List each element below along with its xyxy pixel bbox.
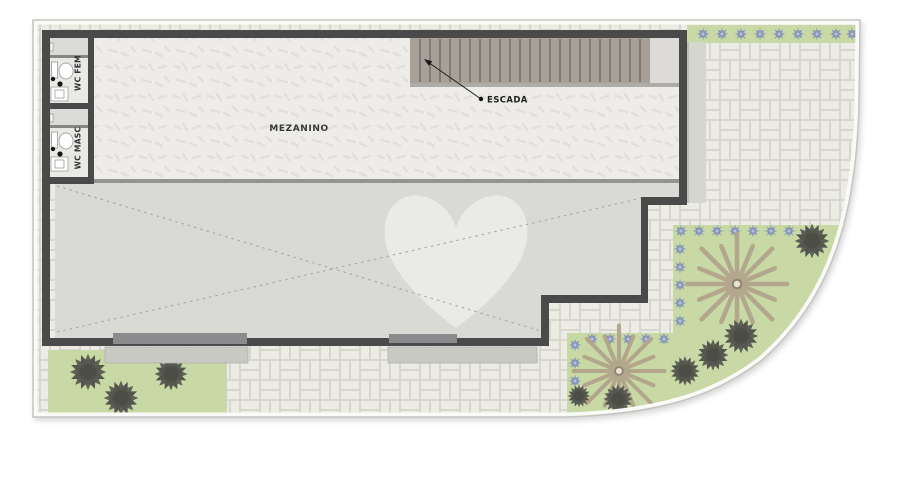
stairs-landing — [650, 38, 679, 83]
wall-right-upper — [679, 30, 687, 205]
door-pivot-icon — [51, 147, 55, 151]
stairs-edge — [410, 83, 679, 87]
toilet-tank-icon — [52, 62, 58, 78]
flower-plant-icon — [568, 356, 581, 369]
flower-plant-icon — [568, 338, 581, 351]
flower-plant-icon — [715, 27, 728, 40]
wall-step2-v — [541, 295, 549, 346]
stairs-label: ESCADA — [487, 96, 528, 106]
wc-fem-anteroom — [50, 38, 88, 55]
flower-plant-icon — [568, 374, 581, 387]
floor-plan-drawing: MEZANINO ESCADA WC FEM WC MASC — [0, 0, 900, 483]
door-pivot-icon — [57, 151, 62, 156]
flower-plant-icon — [782, 224, 795, 237]
faucet-icon — [50, 43, 53, 51]
flower-plant-icon — [696, 27, 709, 40]
flower-plant-icon — [673, 314, 686, 327]
building — [42, 30, 687, 346]
sink-basin-icon — [55, 160, 64, 168]
door-pivot-icon — [57, 81, 62, 86]
flower-plant-icon — [673, 260, 686, 273]
wall-top — [42, 30, 687, 38]
wall-step1-v — [641, 197, 648, 303]
wall-left — [42, 30, 50, 346]
flower-plant-icon — [657, 332, 670, 345]
floor-plan-page: MEZANINO ESCADA WC FEM WC MASC — [0, 0, 900, 483]
side-walkway — [687, 42, 706, 203]
toilet-icon — [59, 63, 73, 79]
door-pivot-icon — [51, 77, 55, 81]
flower-plant-icon — [764, 224, 777, 237]
wall-wc-bottom — [42, 177, 94, 184]
toilet-tank-icon — [52, 132, 58, 148]
wc-masc-anteroom — [50, 109, 88, 125]
side-walkway-edge — [687, 42, 689, 203]
flower-plant-icon — [674, 224, 687, 237]
wc-fem-label: WC FEM — [74, 55, 83, 91]
stairs — [410, 38, 679, 87]
wall-step2-h — [541, 295, 648, 303]
door-threshold — [388, 347, 537, 363]
door-slab — [113, 333, 247, 344]
leader-dot — [479, 97, 483, 101]
flower-plant-icon — [710, 224, 723, 237]
flower-plant-icon — [734, 27, 747, 40]
door-slab — [389, 334, 457, 343]
flower-plant-icon — [810, 27, 823, 40]
wall-wc-divider — [48, 103, 94, 109]
flower-plant-icon — [772, 27, 785, 40]
flower-plant-icon — [746, 224, 759, 237]
mezzanine-label: MEZANINO — [269, 124, 328, 134]
flower-plant-icon — [692, 224, 705, 237]
flower-plant-icon — [829, 27, 842, 40]
flower-plant-icon — [753, 27, 766, 40]
sink-basin-icon — [55, 90, 64, 98]
door-threshold — [105, 347, 248, 363]
flower-plant-icon — [673, 242, 686, 255]
faucet-icon — [50, 114, 53, 122]
toilet-icon — [59, 133, 73, 149]
palm-tree-icon — [687, 234, 787, 334]
mezzanine-edge — [94, 179, 679, 183]
flower-plant-icon — [791, 27, 804, 40]
wc-masc-label: WC MASC — [74, 126, 83, 169]
flower-plant-icon — [673, 296, 686, 309]
flower-plant-icon — [673, 278, 686, 291]
